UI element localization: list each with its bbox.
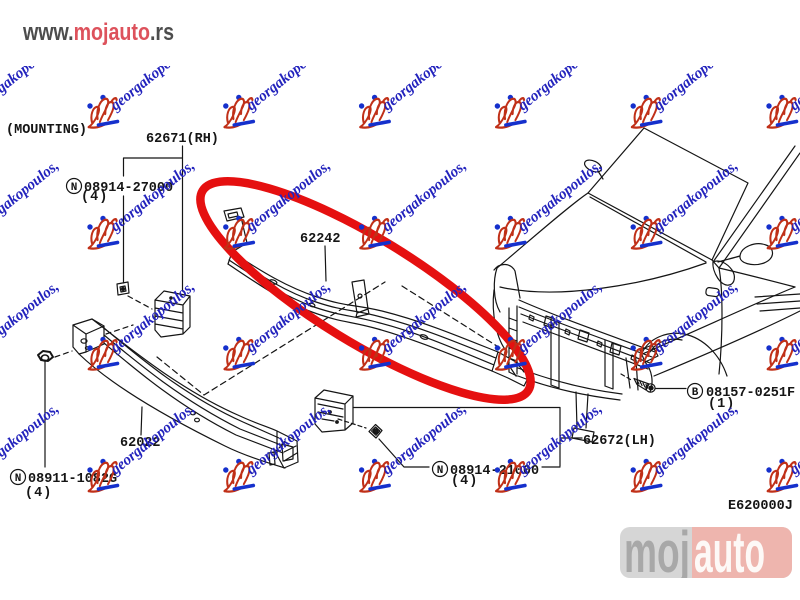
svg-text:(MOUNTING): (MOUNTING) [6, 123, 87, 138]
svg-text:62671(RH): 62671(RH) [146, 132, 219, 147]
svg-text:N: N [15, 473, 22, 485]
svg-text:www.mojauto.rs: www.mojauto.rs [22, 19, 174, 46]
svg-text:moj: moj [624, 519, 690, 585]
svg-text:62242: 62242 [300, 232, 341, 247]
svg-text:(4): (4) [25, 486, 52, 501]
svg-text:auto: auto [694, 519, 765, 585]
svg-text:(4): (4) [451, 474, 478, 489]
svg-text:62672(LH): 62672(LH) [583, 434, 656, 449]
svg-text:(4): (4) [81, 190, 108, 205]
svg-text:N: N [437, 465, 444, 477]
svg-text:N: N [71, 182, 78, 194]
svg-text:B: B [692, 387, 699, 399]
svg-text:E620000J: E620000J [728, 499, 793, 514]
